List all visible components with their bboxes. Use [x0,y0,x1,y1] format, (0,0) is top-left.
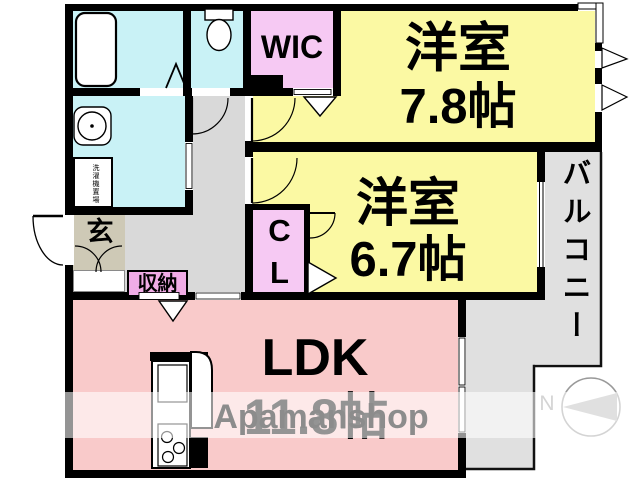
bedroom2-name-label: 洋室 [300,178,516,230]
stove-burner-icon [163,452,174,463]
entrance-inner-door-arc-right [96,246,122,272]
storage-folding-door-icon [159,301,187,321]
wic-folding-door-icon [304,97,336,116]
washbasin-drain-icon [90,124,94,128]
bedroom1-window-1 [595,51,602,68]
bathroom-folding-door-icon [166,64,186,88]
toilet-tank-icon [205,9,233,20]
entrance-door-opening [64,215,74,265]
bedroom1-name-label: 洋室 [350,22,566,75]
washroom-sliding-door-panel [186,144,192,189]
toilet-door-swing-arc [192,98,228,134]
closet-label: CL [261,213,295,297]
bedroom1-size-label: 7.8帖 [350,83,566,132]
wic-label: WIC [252,31,332,63]
bathtub-icon [76,13,116,86]
entrance-label: 玄 [80,219,120,246]
bedroom1-door-swing-arc [252,98,295,141]
casement-window-icon-1 [602,48,627,68]
bedroom1-window-2 [595,84,602,112]
entrance-inner-door-arc-left [75,246,101,272]
entrance-door-swing-arc [33,216,63,265]
balcony-label: バルコニー [554,158,588,348]
stove-burner-icon [174,443,185,454]
watermark-text: Apamanshop [171,400,471,434]
storage-label: 収納 [127,274,188,294]
corner-window-frame-right [596,3,603,43]
laundry-label: 洗濯機置場 [87,164,99,204]
bedroom2-door-swing-arc [252,158,297,203]
casement-window-icon-2 [602,85,627,110]
toilet-bowl-icon [207,20,231,51]
bedroom2-size-label: 6.7帖 [300,236,516,285]
toilet-door-opening [192,88,230,96]
wic-door-track [294,90,331,95]
ldk-name-label: LDK [215,332,415,384]
bedroom2-window [537,182,545,267]
floor-plan: 洋室 7.8帖 洋室 6.7帖 WIC CL 玄 収納 LDK 11.8帖 バル… [0,0,640,480]
bathroom-door-opening [140,88,183,96]
hall-ldk-opening-frame [196,293,240,299]
